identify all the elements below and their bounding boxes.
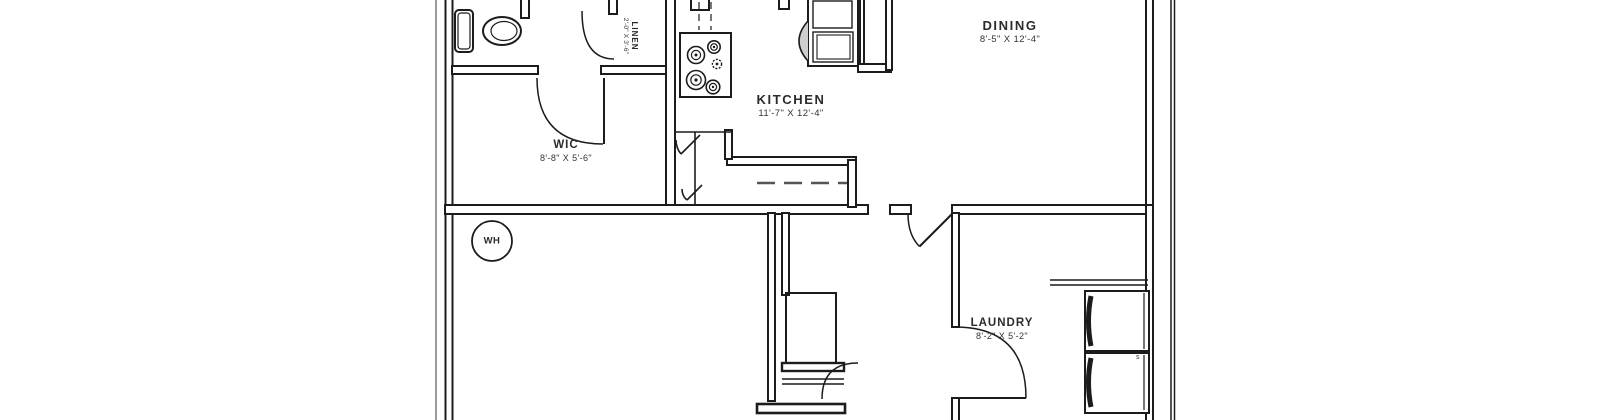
- dryer-icon: [1085, 353, 1149, 413]
- room-label-dining: DINING 8'-5" X 12'-4": [980, 19, 1040, 46]
- room-dims: 2'-0" X 3'-6": [621, 18, 628, 54]
- room-name: LAUNDRY: [971, 317, 1034, 330]
- room-label-kitchen: KITCHEN 11'-7" X 12'-4": [757, 93, 826, 120]
- floorplan-drawing: [0, 0, 1600, 420]
- cooktop-icon: [680, 33, 731, 97]
- room-label-wic: WIC 8'-8" X 5'-6": [540, 139, 592, 164]
- pantry-door-icon: [676, 135, 702, 200]
- dryer-mark: s: [1136, 354, 1140, 361]
- room-name: LINEN: [630, 18, 639, 54]
- range-oven-icon: [799, 0, 858, 66]
- room-name: KITCHEN: [757, 93, 826, 108]
- room-dims: 8'-8" X 5'-6": [540, 153, 592, 163]
- room-label-laundry: LAUNDRY 8'-2" X 5'-2": [971, 317, 1034, 342]
- room-name: WIC: [540, 139, 592, 152]
- water-heater-label: WH: [484, 236, 501, 247]
- room-label-linen: LINEN 2'-0" X 3'-6": [621, 18, 639, 54]
- casework-lines: [676, 132, 1148, 384]
- toilet-icon: [455, 10, 521, 52]
- washer-icon: [1085, 291, 1149, 351]
- room-name: DINING: [980, 19, 1040, 34]
- walls: [445, 0, 1153, 420]
- floorplan-canvas: DINING 8'-5" X 12'-4" KITCHEN 11'-7" X 1…: [0, 0, 1600, 420]
- room-dims: 8'-2" X 5'-2": [971, 331, 1034, 341]
- room-dims: 11'-7" X 12'-4": [757, 109, 826, 120]
- room-dims: 8'-5" X 12'-4": [980, 35, 1040, 46]
